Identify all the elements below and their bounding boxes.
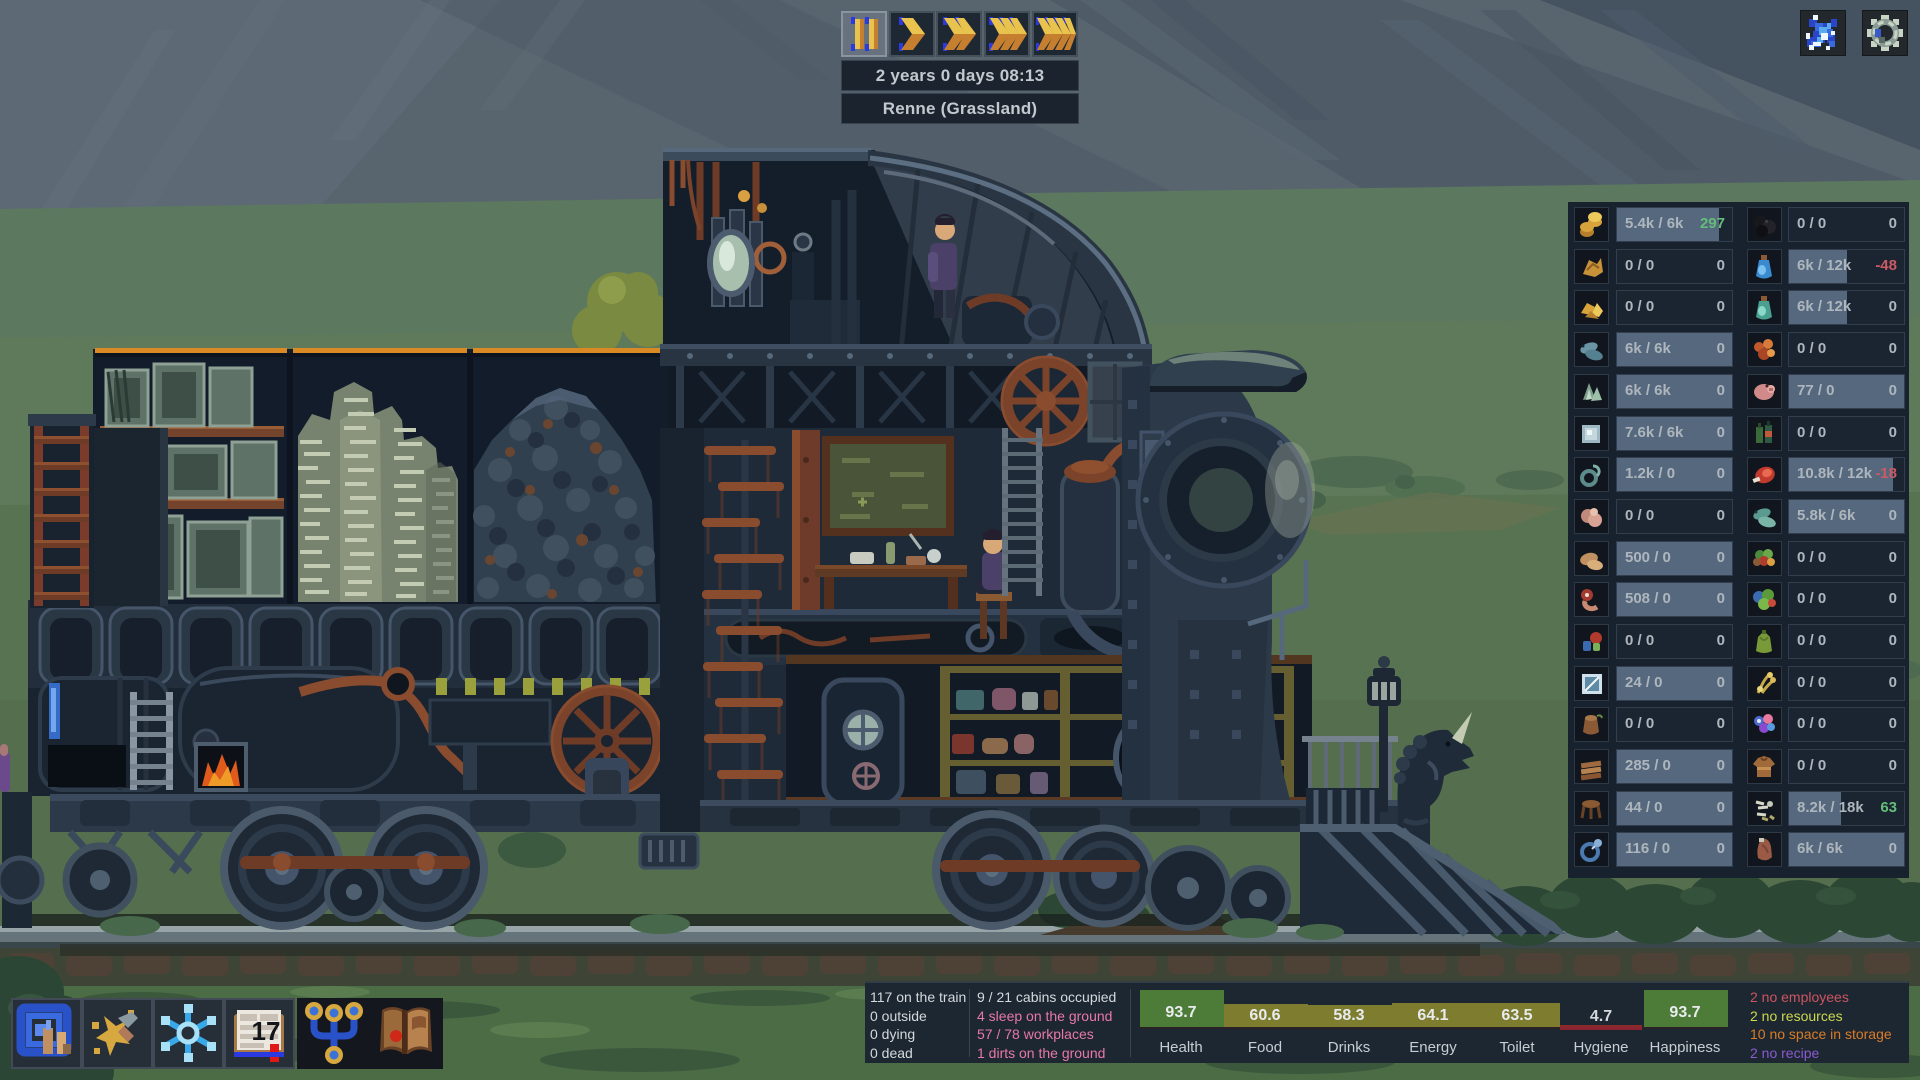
svg-text:17: 17	[252, 1016, 281, 1046]
